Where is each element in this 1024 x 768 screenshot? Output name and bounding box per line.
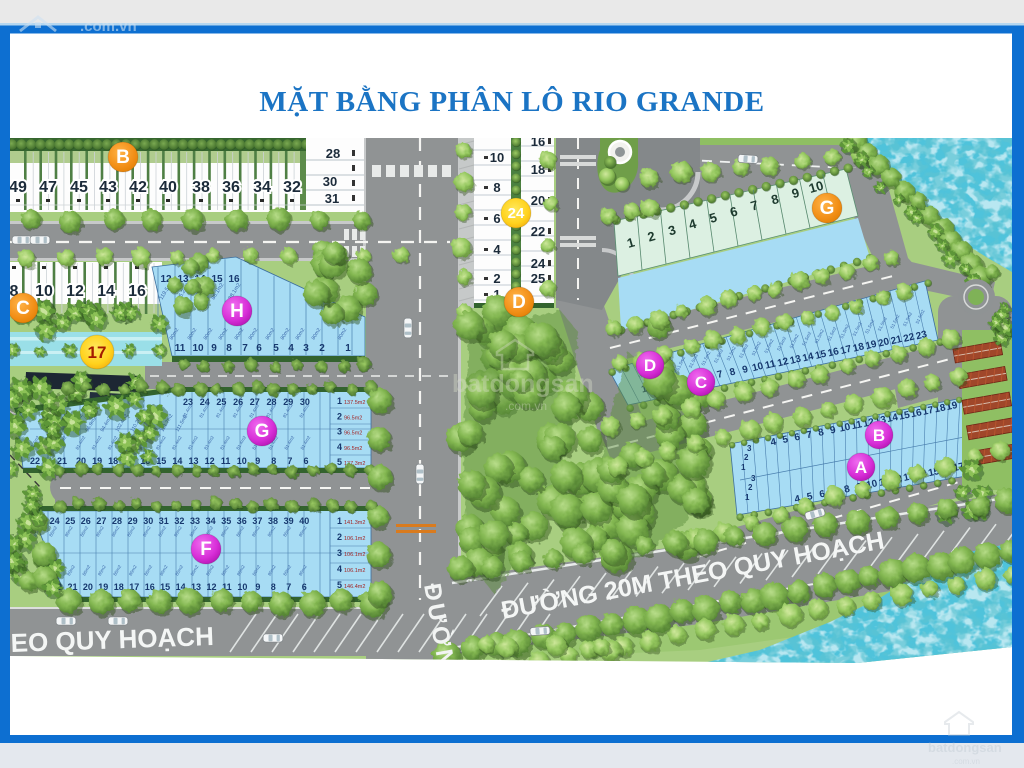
svg-text:10: 10 — [35, 283, 53, 300]
svg-text:7: 7 — [242, 343, 248, 354]
svg-text:30: 30 — [143, 516, 153, 526]
svg-text:3: 3 — [303, 343, 309, 354]
svg-text:24: 24 — [531, 256, 546, 271]
svg-text:B: B — [116, 147, 130, 168]
svg-text:32: 32 — [174, 516, 184, 526]
svg-text:.com.vn: .com.vn — [952, 757, 980, 766]
svg-text:11: 11 — [175, 343, 186, 354]
svg-text:5: 5 — [337, 457, 342, 467]
svg-text:D: D — [644, 356, 656, 375]
svg-text:4: 4 — [493, 242, 501, 257]
svg-text:2: 2 — [337, 532, 342, 542]
svg-text:106.1m2: 106.1m2 — [344, 536, 365, 542]
svg-text:10: 10 — [237, 456, 247, 466]
svg-text:34: 34 — [206, 516, 216, 526]
svg-text:37: 37 — [252, 516, 262, 526]
svg-text:42: 42 — [129, 179, 147, 196]
svg-text:49: 49 — [9, 179, 27, 196]
svg-text:24: 24 — [508, 205, 525, 222]
svg-text:27: 27 — [96, 516, 106, 526]
svg-text:26: 26 — [81, 516, 91, 526]
svg-text:20: 20 — [531, 193, 545, 208]
svg-text:F: F — [200, 539, 212, 560]
svg-text:9: 9 — [255, 582, 260, 592]
svg-text:39: 39 — [284, 516, 294, 526]
svg-text:17: 17 — [88, 343, 107, 362]
svg-text:31: 31 — [159, 516, 169, 526]
svg-text:33: 33 — [190, 516, 200, 526]
svg-text:10: 10 — [490, 150, 504, 165]
svg-text:12: 12 — [205, 456, 215, 466]
svg-text:2: 2 — [748, 483, 753, 492]
svg-text:1: 1 — [741, 463, 746, 472]
svg-text:32: 32 — [283, 179, 301, 196]
svg-text:5: 5 — [273, 343, 279, 354]
svg-text:31: 31 — [325, 191, 339, 206]
svg-text:35: 35 — [221, 516, 231, 526]
svg-text:25: 25 — [65, 516, 75, 526]
svg-text:12: 12 — [66, 283, 84, 300]
svg-text:.com.vn: .com.vn — [505, 399, 547, 413]
svg-text:G: G — [255, 421, 270, 442]
svg-text:106.1m2: 106.1m2 — [344, 552, 365, 558]
svg-text:7: 7 — [286, 582, 291, 592]
svg-text:38: 38 — [192, 179, 210, 196]
svg-text:16: 16 — [145, 582, 155, 592]
svg-text:7: 7 — [287, 456, 292, 466]
svg-text:29: 29 — [128, 516, 138, 526]
svg-text:16: 16 — [128, 283, 146, 300]
svg-text:14: 14 — [97, 283, 115, 300]
svg-text:18: 18 — [114, 582, 124, 592]
svg-text:1: 1 — [745, 493, 750, 502]
svg-text:A: A — [855, 458, 867, 477]
svg-text:2: 2 — [744, 453, 749, 462]
svg-text:4: 4 — [337, 442, 342, 452]
svg-text:6: 6 — [302, 582, 307, 592]
svg-text:2: 2 — [337, 411, 342, 421]
svg-text:38: 38 — [268, 516, 278, 526]
svg-text:28: 28 — [326, 146, 340, 161]
svg-text:1: 1 — [345, 343, 351, 354]
svg-text:3: 3 — [747, 444, 752, 453]
svg-text:12: 12 — [206, 582, 216, 592]
svg-text:D: D — [512, 292, 526, 313]
svg-text:2: 2 — [493, 271, 500, 286]
svg-text:8: 8 — [493, 180, 500, 195]
svg-text:6: 6 — [493, 211, 500, 226]
svg-text:45: 45 — [70, 179, 88, 196]
svg-text:5: 5 — [337, 580, 342, 590]
svg-text:3: 3 — [337, 427, 342, 437]
svg-text:20: 20 — [83, 582, 93, 592]
svg-text:9: 9 — [211, 343, 217, 354]
svg-text:13: 13 — [188, 456, 198, 466]
svg-text:15: 15 — [156, 456, 166, 466]
svg-text:2: 2 — [319, 343, 325, 354]
svg-text:36: 36 — [237, 516, 247, 526]
svg-text:4: 4 — [288, 343, 294, 354]
svg-text:24: 24 — [50, 516, 60, 526]
svg-text:batdongsan: batdongsan — [928, 740, 1002, 755]
svg-text:batdongsan: batdongsan — [452, 370, 594, 398]
svg-text:4: 4 — [337, 564, 342, 574]
svg-text:141.3m2: 141.3m2 — [344, 520, 365, 526]
svg-text:1: 1 — [337, 396, 342, 406]
svg-text:40: 40 — [159, 179, 177, 196]
svg-text:96.5m2: 96.5m2 — [344, 446, 362, 452]
svg-text:6: 6 — [256, 343, 262, 354]
svg-text:8: 8 — [226, 343, 232, 354]
svg-text:C: C — [16, 298, 30, 319]
svg-text:10: 10 — [192, 343, 204, 354]
svg-text:47: 47 — [39, 179, 57, 196]
svg-text:22: 22 — [531, 224, 545, 239]
svg-text:3: 3 — [751, 474, 756, 483]
svg-text:28: 28 — [112, 516, 122, 526]
svg-text:40: 40 — [299, 516, 309, 526]
svg-text:146.4m2: 146.4m2 — [344, 584, 365, 590]
svg-text:34: 34 — [253, 179, 271, 196]
svg-text:3: 3 — [337, 548, 342, 558]
svg-text:43: 43 — [99, 179, 117, 196]
svg-text:30: 30 — [323, 174, 337, 189]
svg-text:106.1m2: 106.1m2 — [344, 568, 365, 574]
svg-text:H: H — [230, 301, 244, 322]
svg-text:137.5m2: 137.5m2 — [344, 400, 365, 406]
svg-text:.com.vn: .com.vn — [80, 18, 137, 35]
svg-text:6: 6 — [303, 456, 308, 466]
svg-text:10: 10 — [237, 582, 247, 592]
svg-text:96.5m2: 96.5m2 — [344, 415, 362, 421]
svg-text:1: 1 — [337, 516, 342, 526]
svg-text:MẶT BẰNG PHÂN LÔ RIO GRANDE: MẶT BẰNG PHÂN LÔ RIO GRANDE — [259, 84, 764, 118]
svg-text:B: B — [873, 426, 885, 445]
svg-text:8: 8 — [271, 582, 276, 592]
svg-text:C: C — [695, 373, 707, 392]
svg-text:96.5m2: 96.5m2 — [344, 431, 362, 437]
svg-text:36: 36 — [222, 179, 240, 196]
svg-text:11: 11 — [221, 456, 231, 466]
svg-text:G: G — [820, 198, 835, 219]
